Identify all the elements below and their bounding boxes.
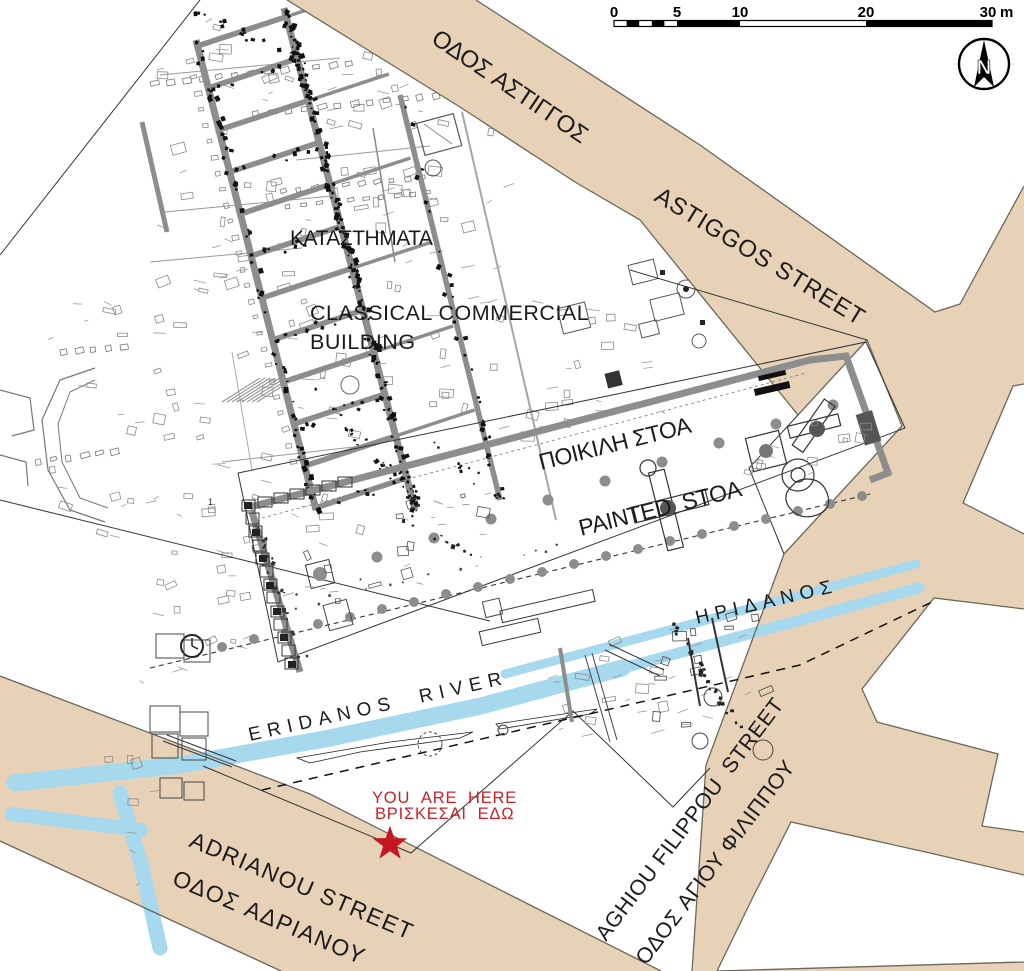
svg-text:m: m (1000, 4, 1013, 21)
svg-text:BUILDING: BUILDING (310, 330, 416, 354)
svg-text:1.: 1. (208, 497, 216, 507)
svg-text:10: 10 (732, 4, 749, 21)
svg-text:CLASSICAL COMMERCIAL: CLASSICAL COMMERCIAL (310, 301, 589, 325)
svg-text:30: 30 (980, 4, 997, 21)
svg-text:20: 20 (858, 4, 875, 21)
svg-text:ΒΡΙΣΚΕΣΑΙ ΕΔΩ: ΒΡΙΣΚΕΣΑΙ ΕΔΩ (375, 805, 514, 823)
svg-text:0: 0 (610, 4, 618, 21)
svg-text:5: 5 (673, 4, 681, 21)
svg-text:N: N (977, 57, 991, 79)
svg-text:ΚΑΤΑΣΤΗΜΑΤΑ: ΚΑΤΑΣΤΗΜΑΤΑ (290, 227, 433, 250)
